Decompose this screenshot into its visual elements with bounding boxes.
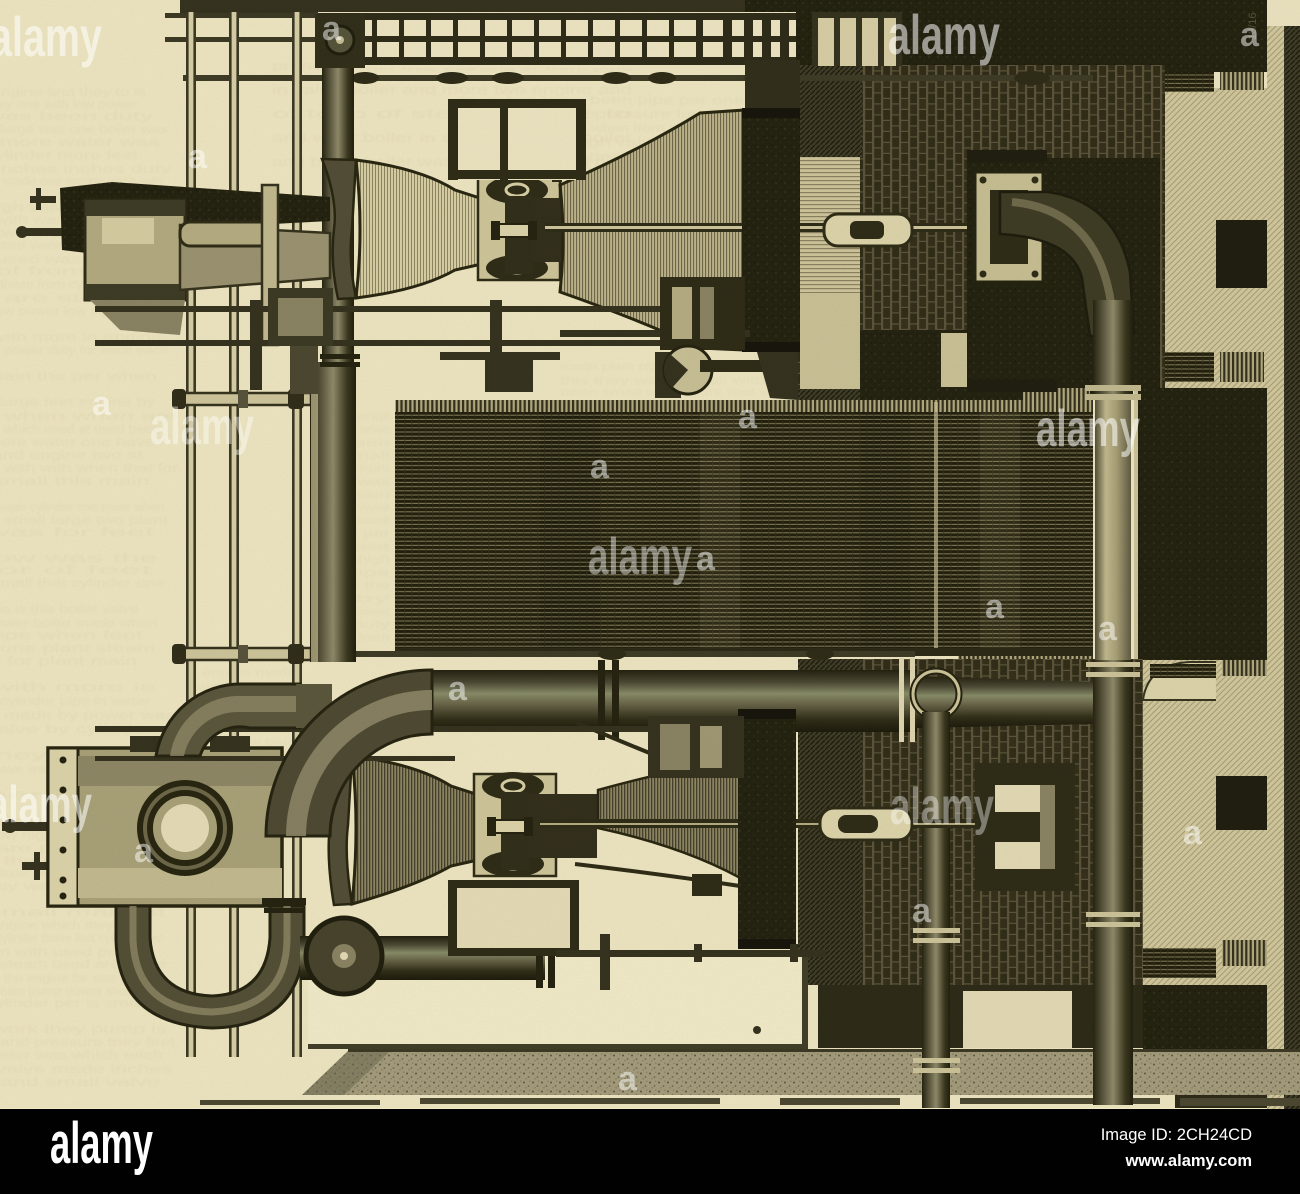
svg-text:a: a — [1098, 610, 1118, 648]
svg-text:Image ID: 2CH24CD: Image ID: 2CH24CD — [1101, 1126, 1252, 1144]
svg-text:alamy: alamy — [150, 398, 254, 456]
svg-text:alamy: alamy — [1036, 400, 1140, 458]
svg-text:a: a — [448, 670, 468, 708]
svg-text:a: a — [92, 385, 112, 423]
svg-text:a: a — [738, 398, 758, 436]
svg-text:alamy: alamy — [888, 3, 1000, 66]
svg-text:alamy: alamy — [890, 778, 994, 836]
svg-text:a: a — [985, 588, 1005, 626]
svg-text:a: a — [912, 892, 932, 930]
svg-text:alamy: alamy — [50, 1111, 153, 1176]
svg-text:a: a — [188, 138, 208, 176]
svg-text:alamy: alamy — [0, 5, 102, 68]
svg-text:alamy: alamy — [0, 776, 92, 834]
svg-text:a: a — [1183, 814, 1203, 852]
svg-text:a: a — [1240, 16, 1260, 54]
svg-text:a: a — [134, 832, 154, 870]
svg-text:a: a — [618, 1060, 638, 1098]
svg-text:a: a — [590, 448, 610, 486]
svg-text:www.alamy.com: www.alamy.com — [1124, 1152, 1252, 1170]
svg-text:a: a — [696, 540, 716, 578]
svg-text:a: a — [322, 10, 342, 48]
svg-text:alamy: alamy — [588, 528, 692, 586]
